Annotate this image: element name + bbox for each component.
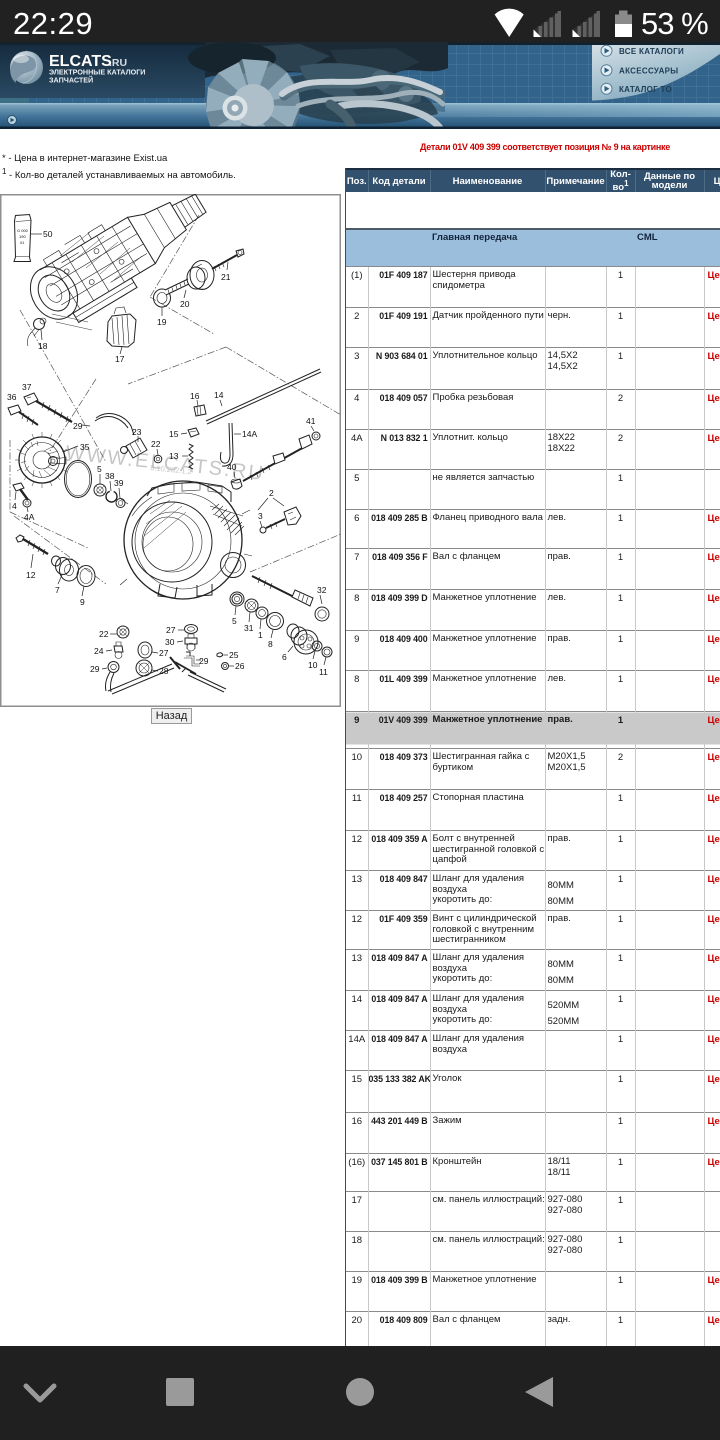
svg-text:39: 39	[114, 478, 124, 488]
svg-text:3: 3	[258, 511, 263, 521]
svg-text:40: 40	[227, 462, 237, 472]
svg-text:30: 30	[165, 637, 175, 647]
svg-text:2: 2	[269, 488, 274, 498]
svg-text:КАТАЛОГ ТО: КАТАЛОГ ТО	[619, 85, 672, 94]
svg-text:АКСЕССУАРЫ: АКСЕССУАРЫ	[619, 67, 678, 76]
svg-text:32: 32	[317, 585, 327, 595]
svg-text:17: 17	[115, 354, 125, 364]
svg-text:14: 14	[214, 390, 224, 400]
svg-text:16: 16	[190, 391, 200, 401]
svg-text:10: 10	[308, 660, 318, 670]
svg-text:12: 12	[26, 570, 36, 580]
svg-text:5: 5	[97, 464, 102, 474]
svg-text:22: 22	[99, 629, 109, 639]
svg-text:24: 24	[94, 646, 104, 656]
svg-text:15: 15	[169, 429, 179, 439]
svg-text:31: 31	[244, 623, 254, 633]
svg-text:41: 41	[306, 416, 316, 426]
svg-text:35: 35	[80, 442, 90, 452]
svg-text:36: 36	[7, 392, 17, 402]
svg-text:23: 23	[132, 427, 142, 437]
svg-text:8: 8	[268, 639, 273, 649]
svg-text:01: 01	[20, 240, 25, 245]
svg-text:ЗАПЧАСТЕЙ: ЗАПЧАСТЕЙ	[49, 76, 93, 85]
svg-text:5: 5	[232, 616, 237, 626]
svg-text:18: 18	[38, 341, 48, 351]
svg-text:25: 25	[229, 650, 239, 660]
svg-text:27: 27	[159, 648, 169, 658]
svg-text:6: 6	[282, 652, 287, 662]
svg-text:26: 26	[235, 661, 245, 671]
svg-text:G 000: G 000	[17, 228, 29, 233]
svg-text:22: 22	[151, 439, 161, 449]
svg-text:27: 27	[166, 625, 176, 635]
svg-text:29: 29	[199, 656, 209, 666]
svg-text:1: 1	[258, 630, 263, 640]
svg-text:7: 7	[55, 585, 60, 595]
svg-text:9: 9	[80, 597, 85, 607]
svg-text:13: 13	[169, 451, 179, 461]
svg-text:29: 29	[73, 421, 83, 431]
svg-text:4: 4	[12, 501, 17, 511]
svg-text:37: 37	[22, 382, 32, 392]
svg-text:11: 11	[319, 667, 328, 677]
svg-text:ВСЕ КАТАЛОГИ: ВСЕ КАТАЛОГИ	[619, 47, 684, 56]
svg-text:21: 21	[221, 272, 231, 282]
svg-text:50: 50	[43, 229, 53, 239]
svg-text:29: 29	[90, 664, 100, 674]
svg-text:19: 19	[157, 317, 167, 327]
svg-text:4A: 4A	[24, 512, 35, 522]
svg-text:14A: 14A	[242, 429, 257, 439]
svg-text:20: 20	[180, 299, 190, 309]
svg-text:190: 190	[19, 234, 26, 239]
